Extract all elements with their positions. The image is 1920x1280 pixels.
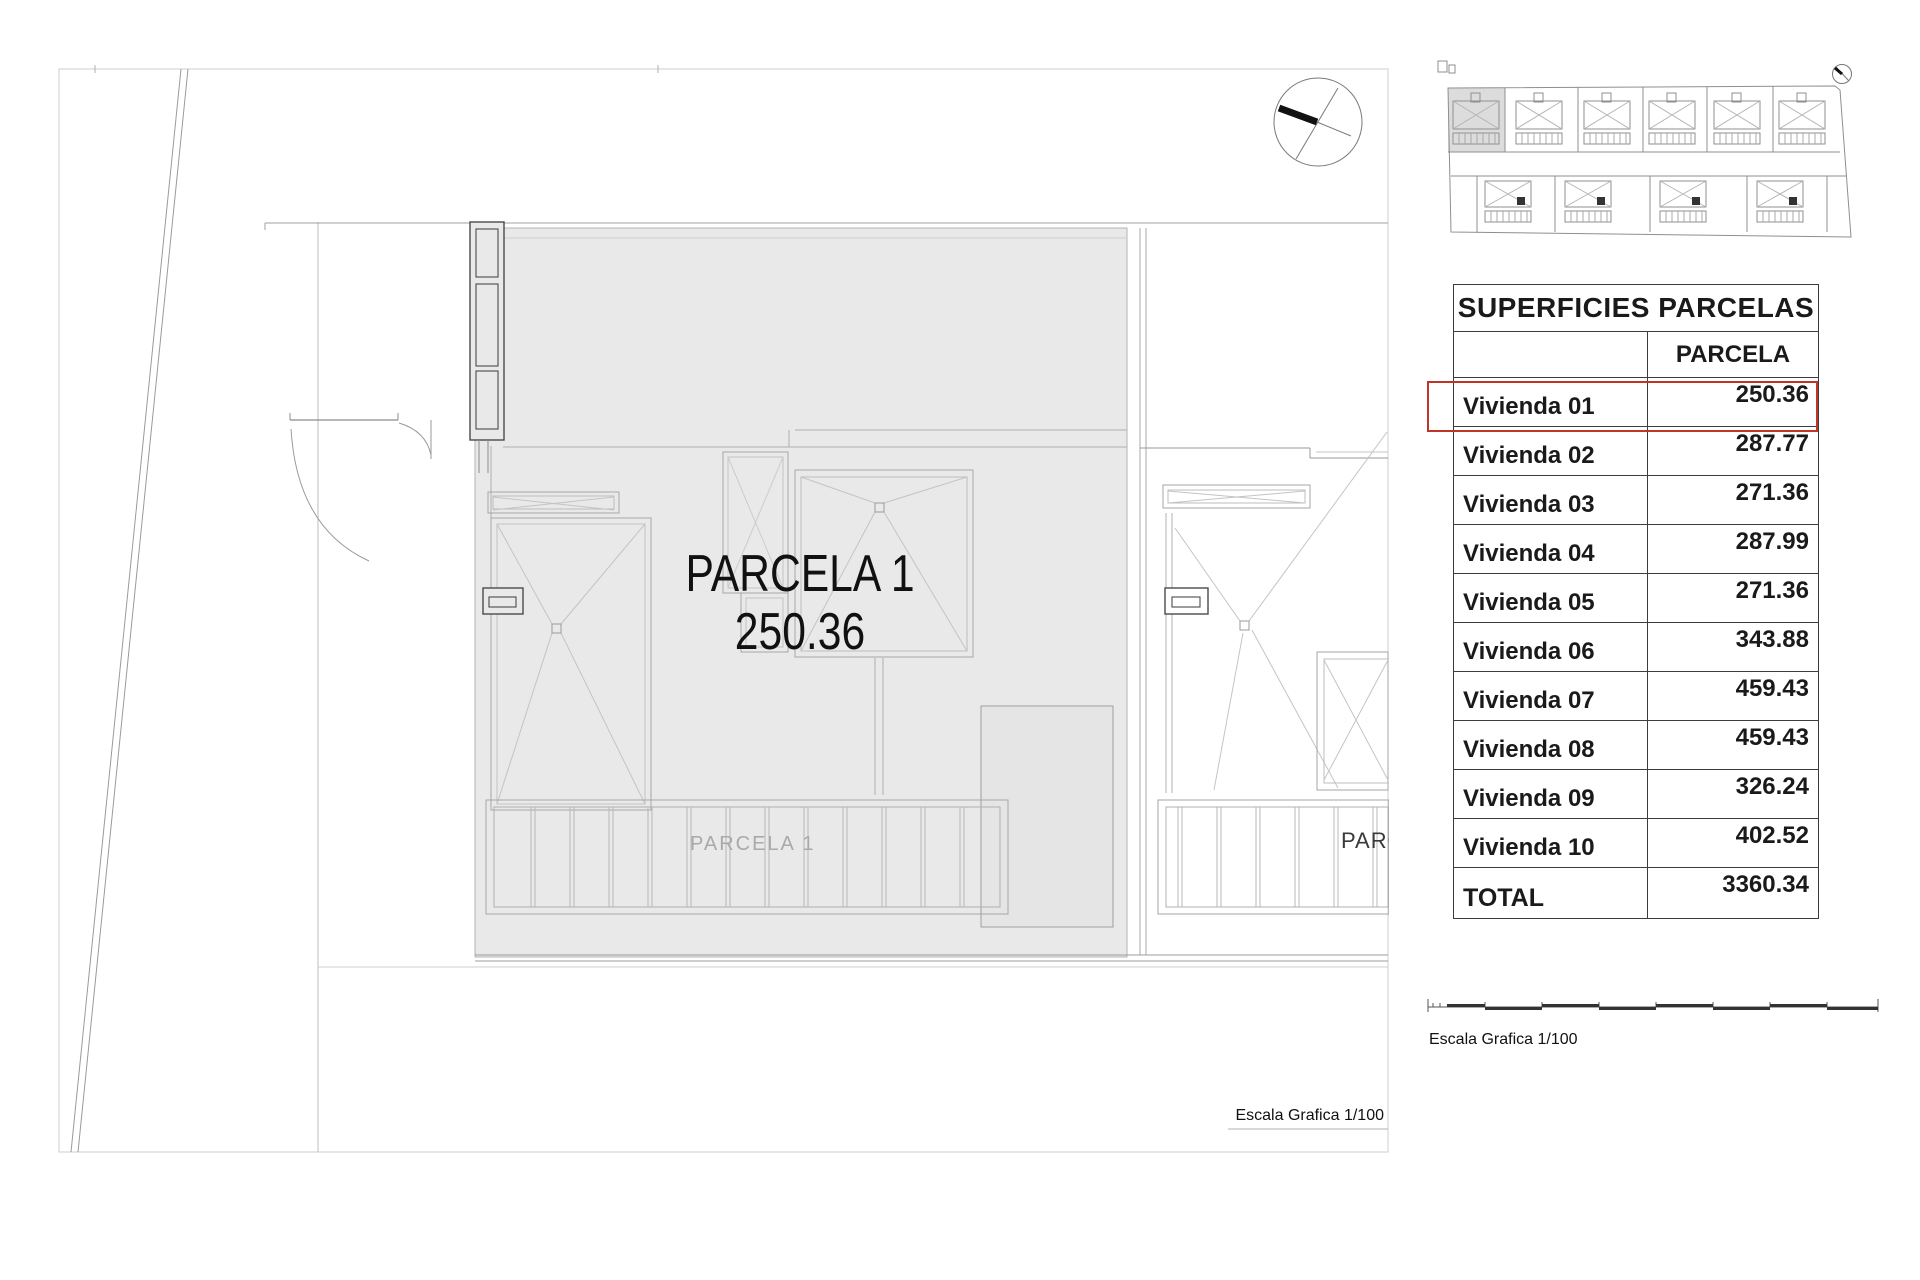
table-row-vivienda-06: Vivienda 06 343.88 — [1454, 623, 1818, 672]
table-header-empty-cell — [1454, 332, 1648, 377]
minimap — [1437, 60, 1907, 250]
neighbor-parcel-label: PARC — [1341, 828, 1389, 854]
scale-bar — [1420, 985, 1910, 1035]
minimap-compass-icon — [1833, 65, 1852, 84]
planter-strip — [470, 222, 504, 473]
minimap-scale-label: Escala Grafica 1/100 — [1429, 1031, 1578, 1049]
surfaces-table: SUPERFICIES PARCELAS PARCELA Vivienda 01… — [1453, 284, 1819, 919]
parcel-label: PARCELA 1 — [644, 544, 956, 604]
table-row-vivienda-01: Vivienda 01 250.36 — [1454, 378, 1818, 427]
table-row-vivienda-03: Vivienda 03 271.36 — [1454, 476, 1818, 525]
drawing-scale-label: Escala Grafica 1/100 — [1134, 1107, 1384, 1125]
table-row-vivienda-07: Vivienda 07 459.43 — [1454, 672, 1818, 721]
table-row-vivienda-05: Vivienda 05 271.36 — [1454, 574, 1818, 623]
table-title: SUPERFICIES PARCELAS — [1454, 285, 1818, 332]
parcel-area-label: 250.36 — [644, 602, 956, 662]
table-header-row: PARCELA — [1454, 332, 1818, 378]
table-row-total: TOTAL 3360.34 — [1454, 868, 1818, 918]
chimney-vent — [483, 588, 523, 614]
table-row-vivienda-04: Vivienda 04 287.99 — [1454, 525, 1818, 574]
patio-rect — [981, 706, 1113, 927]
north-compass-icon — [1274, 78, 1362, 166]
table-header-parcela: PARCELA — [1648, 332, 1818, 377]
pergola-label: PARCELA 1 — [690, 833, 815, 856]
table-row-vivienda-08: Vivienda 08 459.43 — [1454, 721, 1818, 770]
site-plan-drawing: PARCELA 1 250.36 PARCELA 1 PARC Escala G… — [0, 0, 1389, 1280]
minimap-houses — [1453, 93, 1825, 222]
table-row-vivienda-09: Vivienda 09 326.24 — [1454, 770, 1818, 819]
entrance-gate — [290, 413, 431, 561]
road-boundary — [71, 69, 318, 1152]
table-row-vivienda-02: Vivienda 02 287.77 — [1454, 427, 1818, 476]
table-row-vivienda-10: Vivienda 10 402.52 — [1454, 819, 1818, 868]
